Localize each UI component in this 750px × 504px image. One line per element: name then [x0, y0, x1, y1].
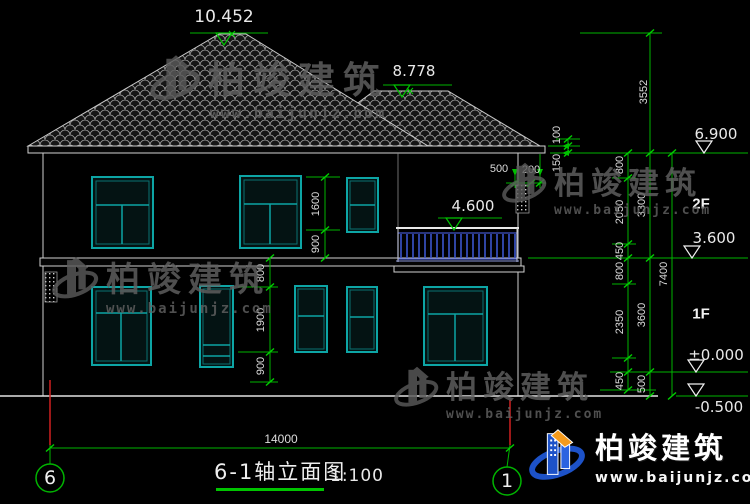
watermark-url: www.baijunjz.com	[106, 301, 273, 317]
eave-band	[28, 146, 545, 153]
axis-number-left: 6	[44, 467, 56, 489]
elevation-site: -0.500	[695, 398, 743, 416]
elevation-floor2: 3.600	[693, 229, 736, 247]
watermark: 柏竣建筑 www.baijunjz.com	[50, 252, 273, 317]
watermark-logo-icon	[148, 50, 204, 106]
window-1f-mid2	[347, 287, 377, 352]
dim-win2f-sill: 900	[310, 235, 322, 253]
elevation-roof-wing: 8.778	[393, 62, 436, 80]
watermark-url: www.baijunjz.com	[554, 203, 711, 218]
dim-right-mid-1: 3600	[636, 303, 648, 327]
watermark-url: www.baijunjz.com	[446, 407, 603, 422]
brand-logo-text: 柏竣建筑	[595, 425, 750, 467]
window-2f-left	[92, 177, 153, 248]
balcony-slab	[394, 266, 524, 272]
brand-logo: 柏竣建筑 www.baijunjz.com	[527, 424, 750, 486]
watermark-brand: 柏竣建筑	[208, 50, 388, 104]
dim-right-inner-3: 800	[614, 262, 626, 280]
drawing-title: 6-1轴立面图	[214, 456, 346, 486]
dim-roof-height: 3552	[638, 80, 650, 104]
window-1f-right	[424, 287, 487, 365]
window-1f-mid1	[295, 286, 327, 352]
watermark-url: www.baijunjz.com	[208, 104, 388, 122]
axis-number-right: 1	[501, 470, 513, 492]
elevation-ground-floor: ±0.000	[688, 346, 744, 364]
dim-eave-detail-0: 100	[551, 126, 563, 144]
dim-total-height: 7400	[658, 262, 670, 286]
brand-logo-icon	[527, 424, 589, 486]
elevation-eave: 6.900	[695, 125, 738, 143]
dim-right-inner-2: 450	[614, 242, 626, 260]
drawing-scale: 1:100	[330, 466, 384, 486]
floor-label-1f: 1F	[692, 306, 710, 323]
watermark-logo-icon	[392, 362, 442, 412]
elevation-balcony: 4.600	[452, 197, 495, 215]
dim-win1f-sill: 900	[255, 357, 267, 375]
dim-right-inner-4: 2350	[614, 310, 626, 334]
watermark-logo-icon	[50, 252, 102, 304]
balcony-railing	[396, 228, 519, 262]
watermark-brand: 柏竣建筑	[106, 252, 273, 301]
dim-right-mid-2: 500	[636, 375, 648, 393]
watermark-logo-icon	[500, 158, 550, 208]
brand-logo-url: www.baijunjz.com	[595, 470, 750, 486]
window-2f-small	[347, 178, 378, 232]
watermark-brand: 柏竣建筑	[554, 158, 711, 203]
window-2f-mid	[240, 176, 301, 248]
elevation-roof-main: 10.452	[194, 7, 253, 27]
title-underline	[216, 488, 324, 491]
dim-win2f-height: 1600	[310, 192, 322, 216]
watermark: 柏竣建筑 www.baijunjz.com	[148, 50, 388, 122]
watermark: 柏竣建筑 www.baijunjz.com	[500, 158, 711, 218]
dim-total-width: 14000	[264, 432, 297, 446]
watermark-brand: 柏竣建筑	[446, 362, 603, 407]
dim-right-inner-5: 450	[614, 372, 626, 390]
cad-elevation-drawing: 10.452 8.778 6.900 4.600 3.600 ±0.000 -0…	[0, 0, 750, 504]
watermark: 柏竣建筑 www.baijunjz.com	[392, 362, 603, 422]
